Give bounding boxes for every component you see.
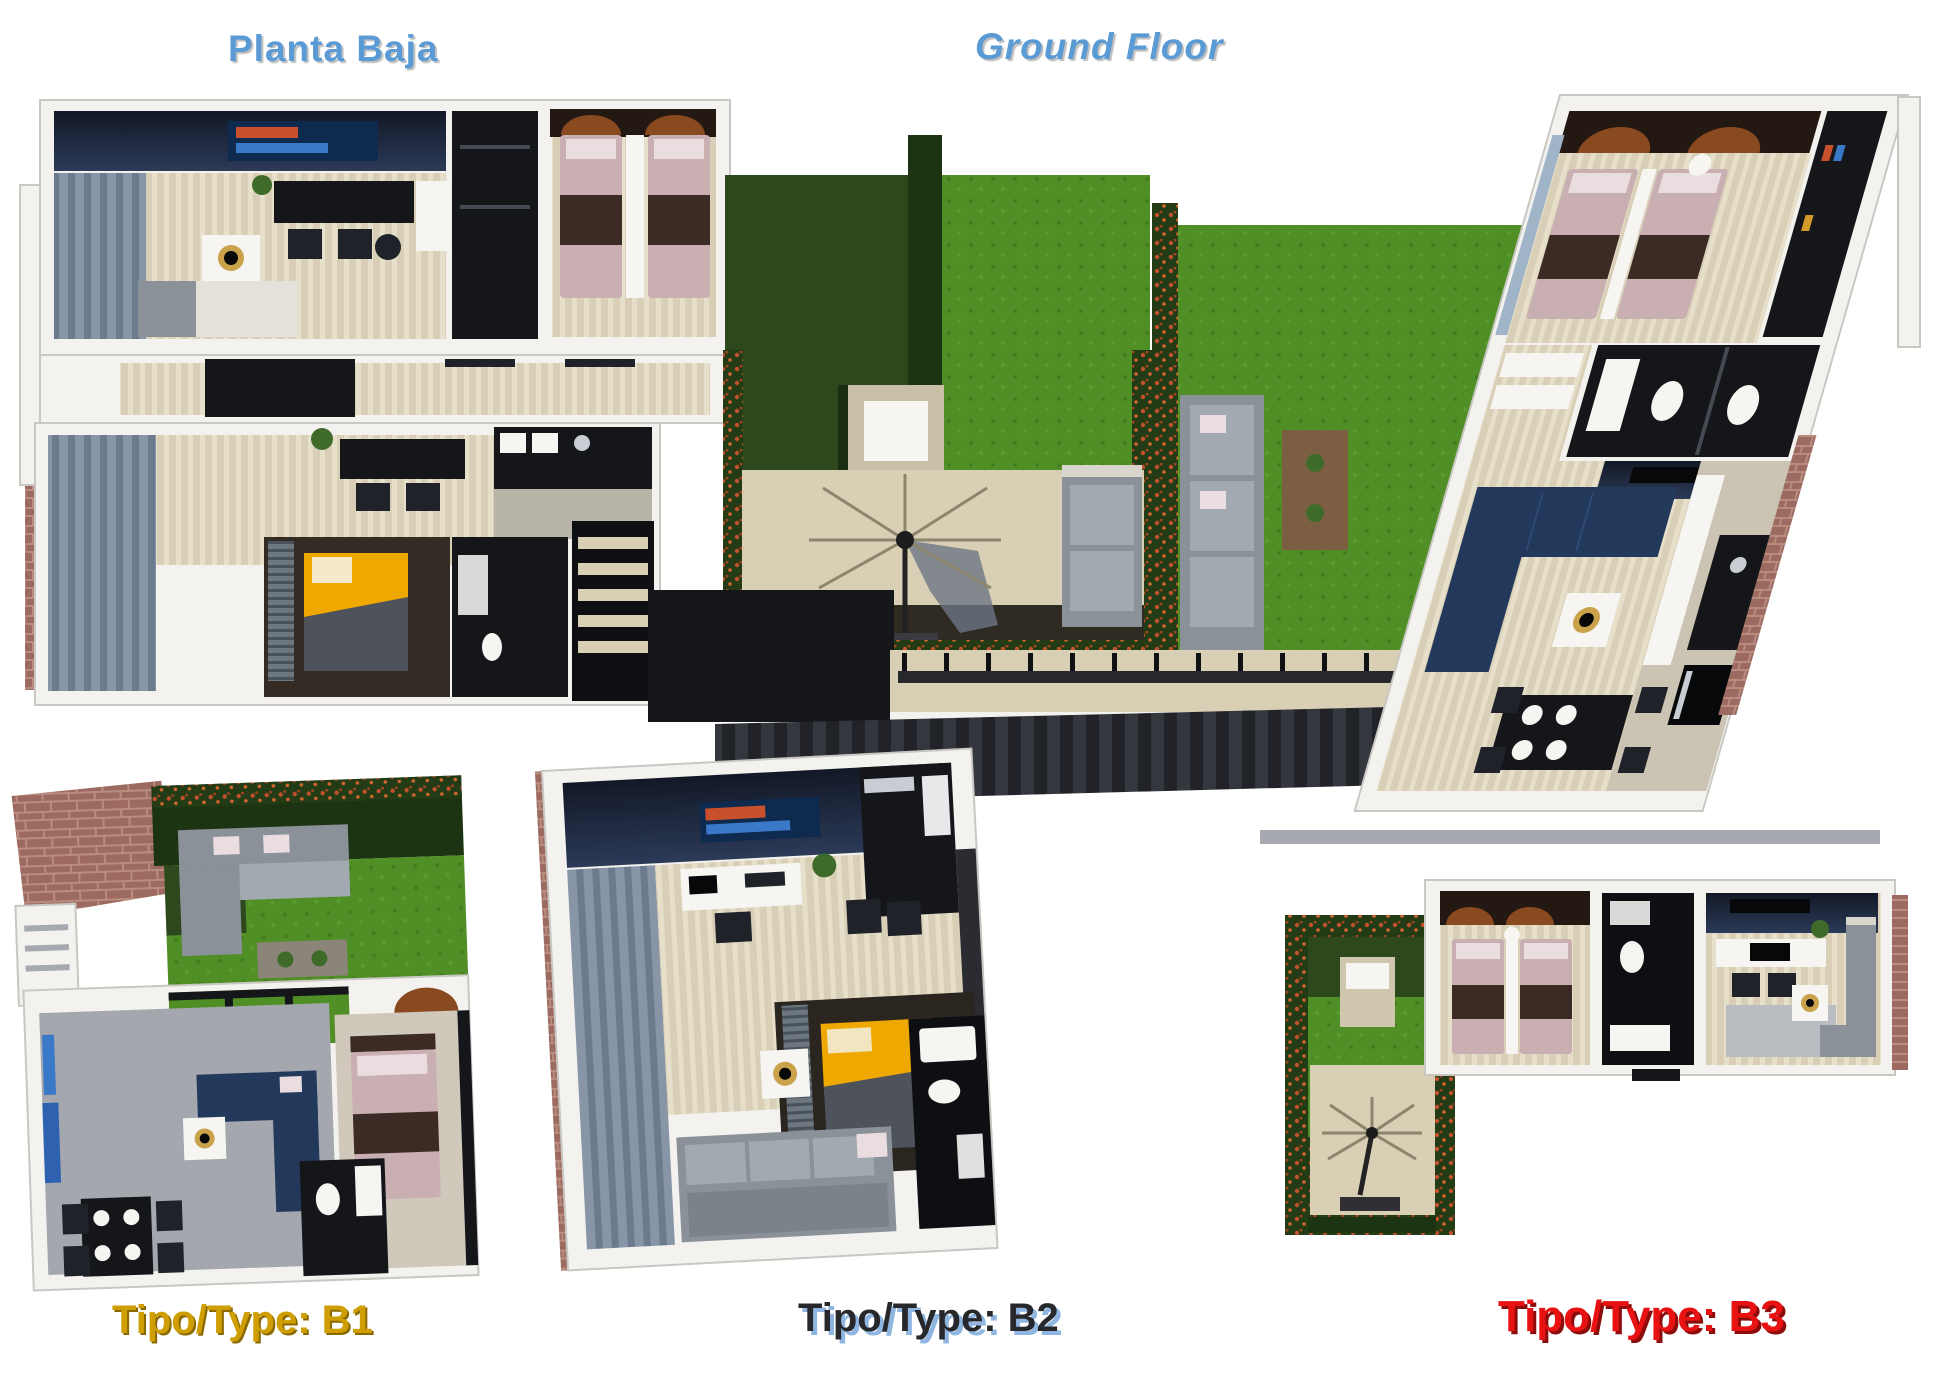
cooktop xyxy=(1750,943,1790,961)
headboard xyxy=(350,1033,436,1052)
b3-living-kitchen xyxy=(1706,893,1881,1065)
unit-b2-render xyxy=(535,749,998,1271)
curtain-wall xyxy=(48,435,156,691)
roof-sliver xyxy=(1898,97,1920,347)
type-label-b1: Tipo/Type: B1 xyxy=(112,1298,373,1343)
dining-chair xyxy=(886,900,922,936)
bed-blanket xyxy=(1520,985,1572,1019)
b2-sofa xyxy=(676,1126,896,1242)
vanity xyxy=(458,555,488,615)
dining-chair xyxy=(62,1204,89,1235)
desk-chair xyxy=(406,483,440,511)
hedge-bottom xyxy=(1308,1217,1436,1233)
twin-bedroom xyxy=(1493,111,1888,343)
dining-chair xyxy=(157,1242,184,1273)
pillow xyxy=(312,557,352,583)
sofa-cushion xyxy=(1070,485,1134,545)
table-plant xyxy=(1306,454,1324,472)
stair-tread xyxy=(578,563,648,575)
laptop xyxy=(689,875,718,894)
bed-blanket xyxy=(648,195,710,245)
tv-screen xyxy=(1730,899,1810,913)
pillow xyxy=(1658,173,1722,193)
left-lower-unit xyxy=(35,423,660,705)
toilet xyxy=(482,633,502,661)
bed-blanket xyxy=(1452,985,1504,1019)
pillow xyxy=(1200,415,1226,433)
interior-stairs xyxy=(572,521,654,701)
plant xyxy=(252,175,272,195)
bed-blanket xyxy=(1537,235,1620,279)
dining-chair xyxy=(846,899,882,935)
pillow xyxy=(280,1076,303,1093)
dining-chair xyxy=(63,1246,90,1277)
pillow xyxy=(654,139,704,159)
tv-console xyxy=(42,1103,61,1184)
b3-bathroom xyxy=(1602,893,1694,1065)
bathroom xyxy=(452,537,568,697)
desk-chair xyxy=(338,229,372,259)
pillow xyxy=(1456,943,1500,959)
shower xyxy=(1610,901,1650,925)
chair-shadow xyxy=(838,385,848,477)
vanity xyxy=(1610,1025,1670,1051)
floor-plan-renders xyxy=(0,0,1942,1373)
armchair-cushion xyxy=(864,401,928,461)
dining-chair xyxy=(156,1200,183,1231)
door-gap xyxy=(1632,1069,1680,1081)
twin-bedroom xyxy=(550,109,716,337)
wardrobe-shelf xyxy=(460,205,530,209)
title-ground-floor: Ground Floor xyxy=(975,26,1223,68)
sofa-cushion xyxy=(749,1139,811,1182)
fireplace-core xyxy=(1806,999,1814,1007)
b3-unit xyxy=(1425,880,1908,1081)
bed-runner xyxy=(626,135,644,298)
stool xyxy=(375,234,401,260)
hallway xyxy=(40,355,730,423)
main-plan-render xyxy=(20,95,1920,844)
umbrella-base xyxy=(1340,1197,1400,1211)
b2-bathroom xyxy=(908,1015,995,1229)
pillow xyxy=(827,1027,872,1053)
plant xyxy=(1811,920,1829,938)
bottom-shadow-strip xyxy=(1260,830,1880,844)
bed-blanket xyxy=(560,195,622,245)
sofa-cushion xyxy=(685,1142,747,1185)
b1-garden xyxy=(151,775,468,1006)
door-mark xyxy=(445,359,515,367)
closet-door xyxy=(1490,385,1575,409)
umbrella-hub xyxy=(1366,1127,1378,1139)
shower-tray xyxy=(919,1026,977,1063)
garden-sofa-chaise xyxy=(179,864,242,956)
left-upper-unit xyxy=(40,100,730,355)
pillow xyxy=(263,834,290,853)
stair-tread xyxy=(578,537,648,549)
pendant-lamp xyxy=(1504,927,1520,943)
b1-unit xyxy=(23,975,478,1290)
unit-b1-render xyxy=(11,770,478,1290)
page-background: Planta Baja Ground Floor Tipo/Type: B1 T… xyxy=(0,0,1942,1373)
dark-landing xyxy=(648,590,894,722)
wall-painting xyxy=(42,1035,56,1095)
pillow xyxy=(566,139,616,159)
bed-blanket xyxy=(353,1111,439,1154)
b3-bedroom xyxy=(1440,891,1590,1065)
type-label-b2: Tipo/Type: B2 xyxy=(798,1296,1059,1341)
desk-gear xyxy=(745,872,786,888)
fridge xyxy=(922,775,951,836)
kitchen-cabinet xyxy=(500,433,526,453)
curtain-wall xyxy=(54,173,146,339)
pillow xyxy=(213,836,240,855)
plant xyxy=(311,428,333,450)
type-label-b3: Tipo/Type: B3 xyxy=(1498,1292,1785,1342)
umbrella-hub xyxy=(896,531,914,549)
sink xyxy=(957,1134,985,1179)
bathroom xyxy=(1566,345,1820,457)
desk xyxy=(340,439,465,479)
dining-table xyxy=(81,1196,154,1276)
bed-runner xyxy=(1506,939,1518,1054)
sofa-cushion xyxy=(1190,557,1254,627)
bed-blanket xyxy=(138,281,196,337)
logo-bar xyxy=(236,143,328,153)
vanity xyxy=(355,1165,383,1216)
gold-mirror-core xyxy=(224,251,238,265)
grass-light xyxy=(935,175,1150,475)
wardrobe-shelf xyxy=(460,145,530,149)
sofa-cushion xyxy=(1070,551,1134,611)
pillow xyxy=(1200,491,1226,509)
stair-tread xyxy=(578,641,648,653)
pillow xyxy=(1524,943,1568,959)
pillow xyxy=(1568,173,1632,193)
unit-b3-render xyxy=(1285,880,1908,1235)
sofa-back xyxy=(1062,465,1142,477)
brick-edge xyxy=(1892,895,1908,1070)
sofa-chaise xyxy=(1820,1025,1876,1057)
pillow xyxy=(856,1133,887,1159)
dark-doorway xyxy=(205,359,355,417)
bar-chair xyxy=(1768,973,1796,997)
cabinet-lid xyxy=(1346,963,1389,989)
garden-sofa-back xyxy=(178,824,349,866)
counter-steel xyxy=(864,777,915,794)
bed-blanket xyxy=(1627,235,1710,279)
toilet xyxy=(1620,941,1644,973)
stair-tread xyxy=(578,615,648,627)
desk-chair xyxy=(356,483,390,511)
flower-hedge-cypress xyxy=(1152,203,1178,703)
b1-bathroom xyxy=(300,1158,389,1276)
yellow-bedroom xyxy=(264,537,450,697)
stair-tread xyxy=(578,589,648,601)
desk xyxy=(274,181,414,223)
desk-chair xyxy=(715,911,753,943)
sink xyxy=(574,435,590,451)
bar-chair xyxy=(1732,973,1760,997)
kitchen-cabinet xyxy=(532,433,558,453)
table-plant xyxy=(1306,504,1324,522)
pillow xyxy=(357,1054,428,1076)
slat-screen xyxy=(268,541,294,681)
closet-door xyxy=(1499,353,1584,377)
title-planta-baja: Planta Baja xyxy=(228,28,438,70)
door-mark xyxy=(565,359,635,367)
console xyxy=(416,181,450,251)
courtyard xyxy=(723,135,1163,660)
desk-chair xyxy=(288,229,322,259)
coffee-table xyxy=(1282,430,1348,550)
logo-bar xyxy=(236,127,298,138)
coffee-table xyxy=(257,939,348,978)
brick-path xyxy=(11,780,176,918)
